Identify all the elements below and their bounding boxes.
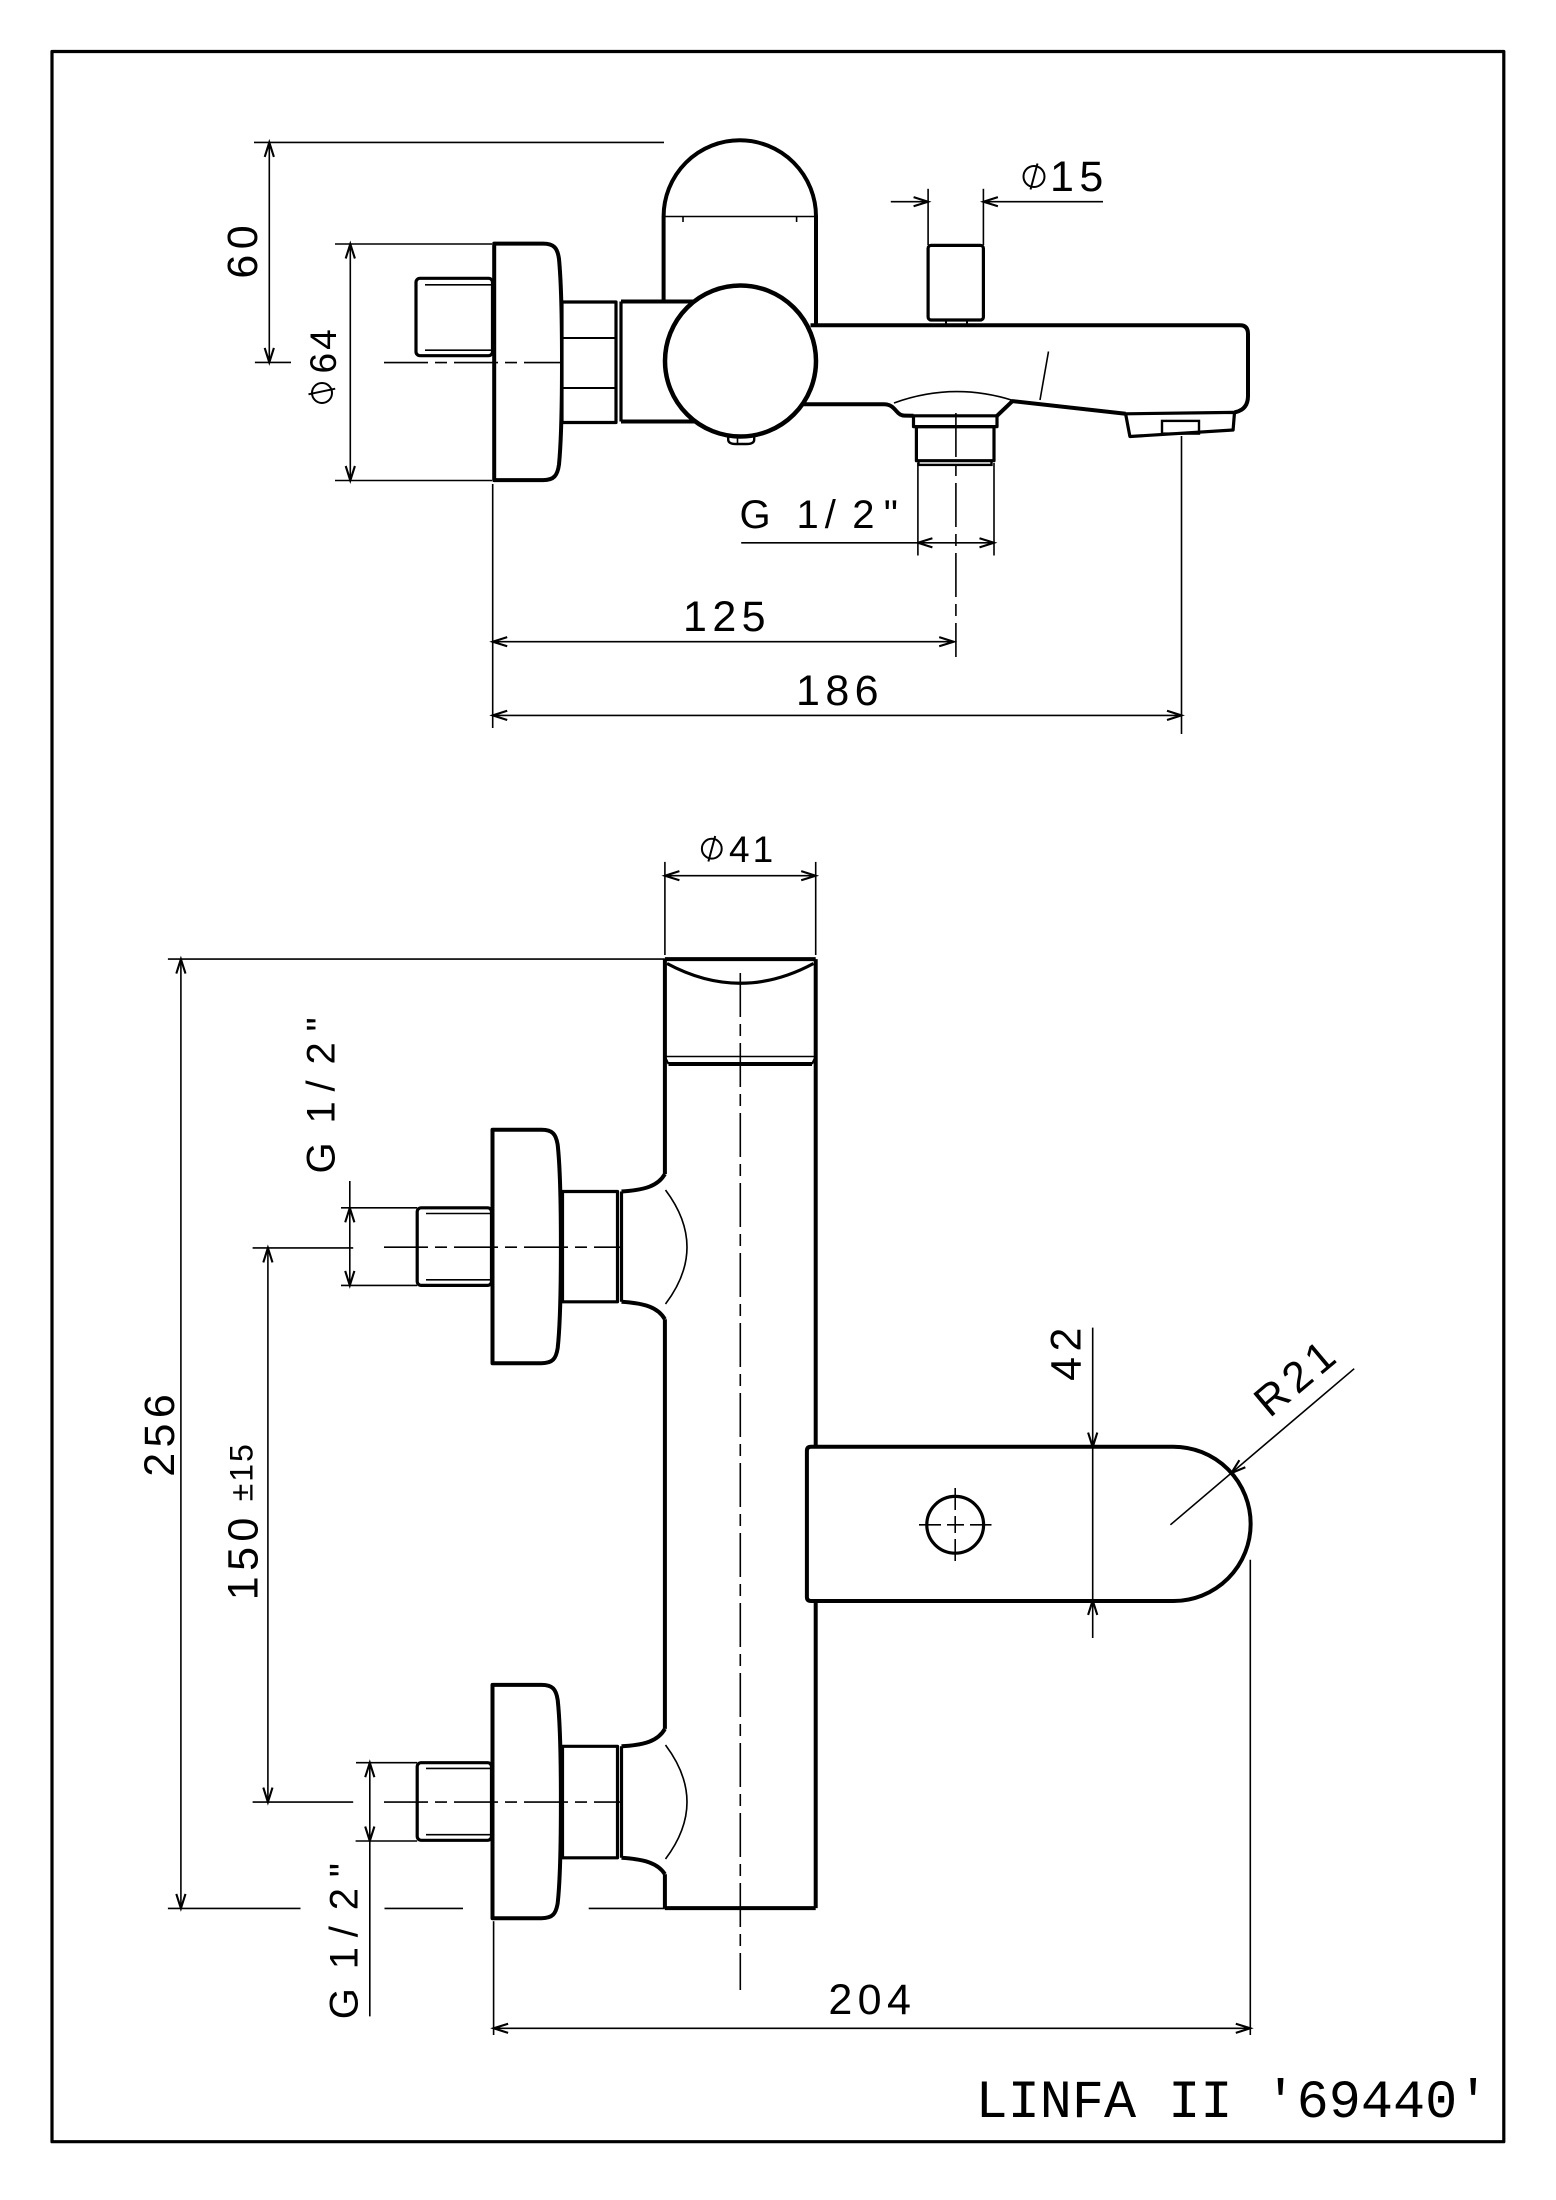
- svg-text:60: 60: [219, 220, 267, 279]
- svg-text:204: 204: [828, 1976, 916, 2024]
- svg-text:LINFA II '69440': LINFA II '69440': [976, 2073, 1490, 2134]
- svg-text:42: 42: [1042, 1322, 1090, 1381]
- svg-text:125: 125: [683, 593, 771, 641]
- svg-text:64: 64: [303, 326, 344, 373]
- svg-text:41: 41: [729, 829, 776, 870]
- svg-text:G1/2": G1/2": [740, 493, 903, 537]
- svg-text:150: 150: [220, 1512, 268, 1600]
- svg-text:186: 186: [796, 667, 884, 715]
- svg-text:±15: ±15: [224, 1442, 260, 1501]
- svg-text:15: 15: [1050, 153, 1109, 201]
- svg-text:256: 256: [136, 1389, 184, 1477]
